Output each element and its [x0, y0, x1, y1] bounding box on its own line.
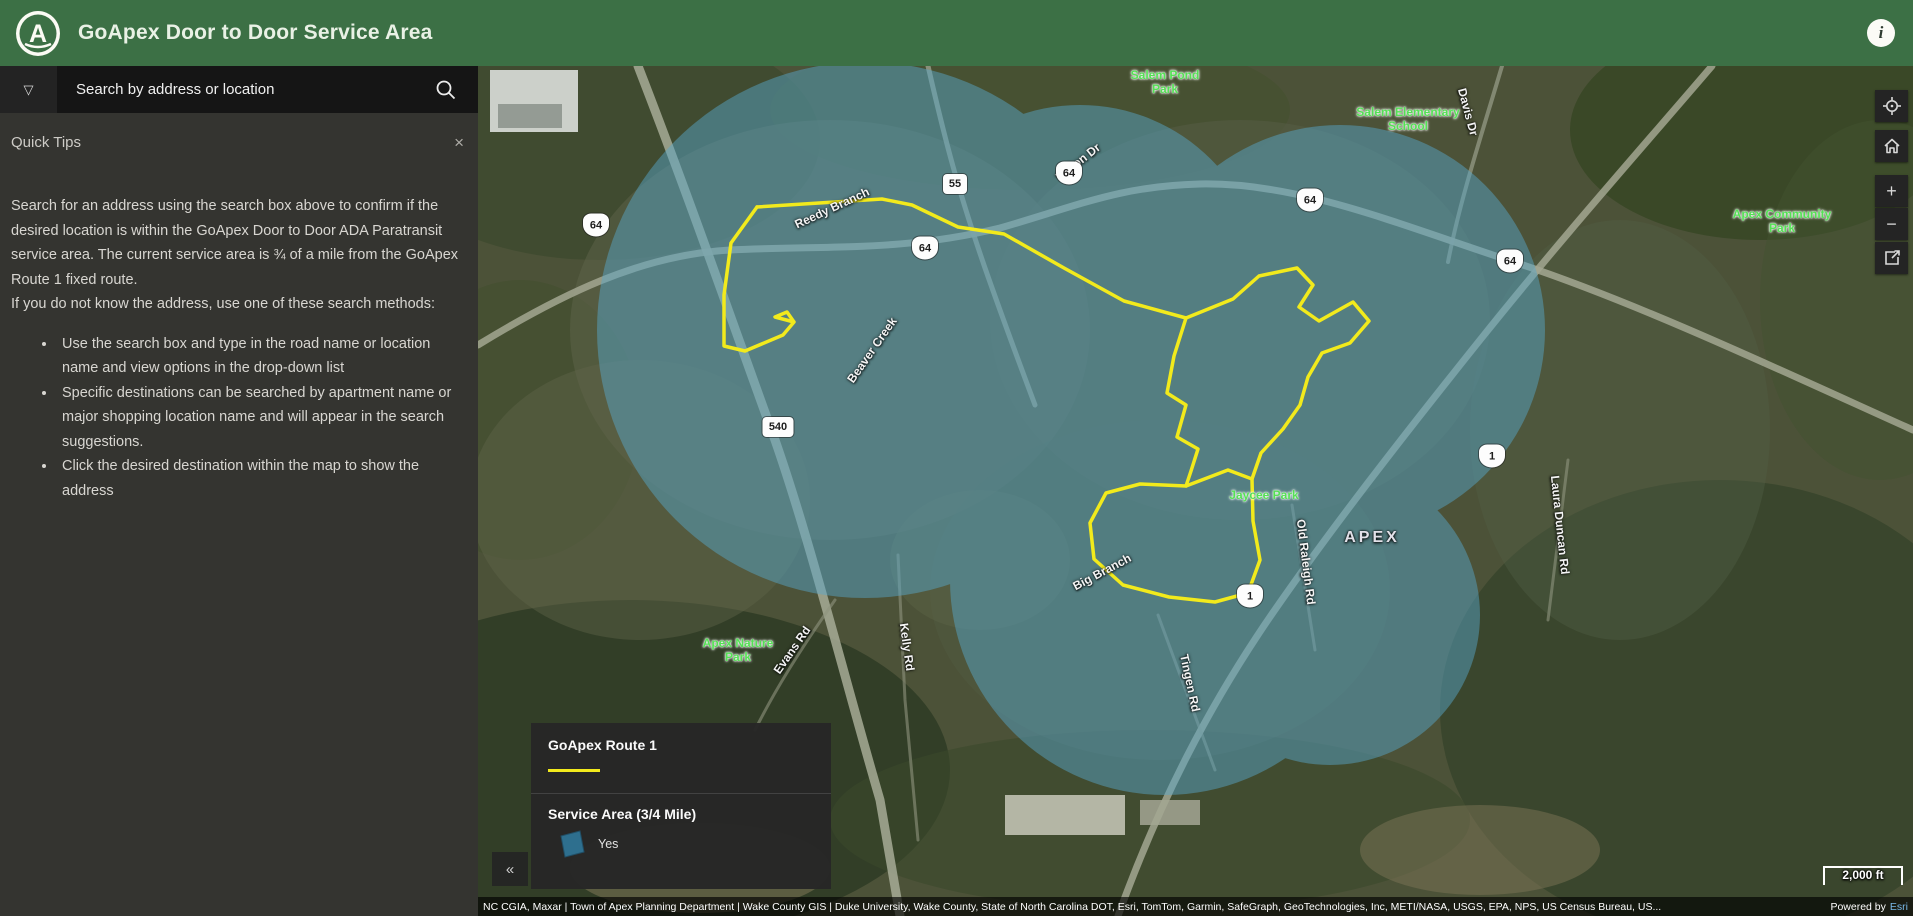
share-button[interactable] [1875, 242, 1908, 274]
legend-panel: GoApex Route 1 Service Area (3/4 Mile) Y… [531, 723, 831, 889]
legend-area-value: Yes [598, 837, 618, 851]
svg-text:A: A [29, 20, 47, 48]
search-submit-button[interactable] [414, 79, 478, 101]
zoom-out-button[interactable]: − [1875, 208, 1908, 240]
tip-bullet: Specific destinations can be searched by… [57, 381, 470, 455]
search-input-wrap [57, 66, 478, 113]
powered-by: Powered byEsri [1818, 901, 1908, 913]
locate-button[interactable] [1875, 90, 1908, 122]
map-canvas[interactable]: Salem Pond ParkSalem Elementary SchoolAp… [478, 66, 1913, 916]
esri-brand: Esri [1890, 901, 1908, 913]
share-export-icon [1882, 248, 1902, 268]
tip-bullet: Use the search box and type in the road … [57, 332, 470, 381]
search-source-dropdown[interactable]: ▽ [0, 66, 57, 113]
page-title: GoApex Door to Door Service Area [78, 21, 433, 45]
info-button[interactable]: i [1867, 19, 1895, 47]
quick-tips-panel: Quick Tips × Search for an address using… [0, 113, 478, 503]
apex-town-logo: A [15, 10, 61, 57]
close-icon[interactable]: × [454, 134, 464, 151]
attribution-sources: NC CGIA, Maxar | Town of Apex Planning D… [483, 901, 1661, 913]
tips-bullet-list: Use the search box and type in the road … [11, 332, 470, 504]
home-icon [1882, 136, 1902, 156]
locate-icon [1882, 96, 1902, 116]
search-bar: ▽ [0, 66, 478, 113]
app-window: A GoApex Door to Door Service Area i ▽ [0, 0, 1913, 916]
attribution-bar: NC CGIA, Maxar | Town of Apex Planning D… [478, 897, 1913, 916]
chevron-down-icon: ▽ [24, 82, 34, 97]
legend-route-title: GoApex Route 1 [548, 737, 831, 753]
quick-tips-title: Quick Tips [11, 134, 81, 151]
service-area-swatch [559, 830, 585, 858]
collapse-panel-button[interactable]: « [492, 852, 528, 886]
sidebar: ▽ Quick Tips × Search for an address usi… [0, 66, 478, 916]
home-button[interactable] [1875, 130, 1908, 162]
zoom-in-button[interactable]: + [1875, 175, 1908, 207]
search-input[interactable] [57, 81, 414, 98]
search-icon [435, 79, 457, 101]
tips-paragraph-1: Search for an address using the search b… [11, 194, 470, 292]
route-line-swatch [548, 769, 600, 772]
app-header: A GoApex Door to Door Service Area i [0, 0, 1913, 66]
tips-paragraph-2: If you do not know the address, use one … [11, 292, 470, 317]
legend-area-title: Service Area (3/4 Mile) [548, 806, 831, 822]
tip-bullet: Click the desired destination within the… [57, 454, 470, 503]
